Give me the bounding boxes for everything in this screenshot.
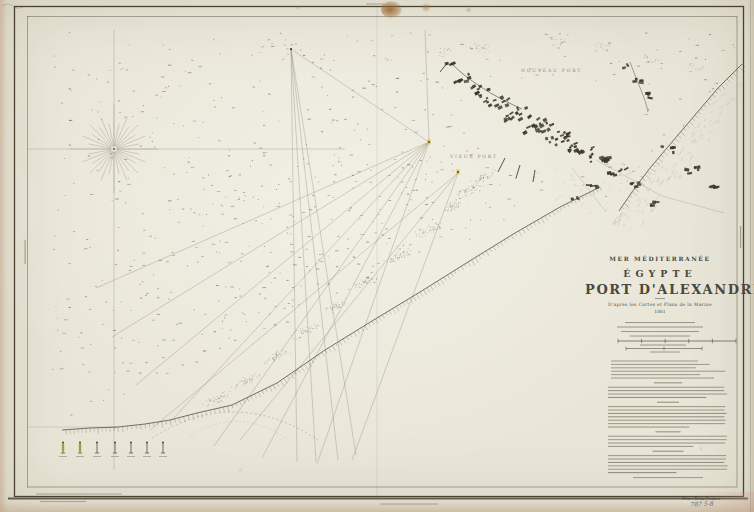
chart-sheet: MER MÉDITERRANÉE ÉGYPTE PORT D'ALEXANDRI…	[0, 0, 754, 512]
label-vieux-port: VIEUX PORT	[450, 154, 498, 159]
paper-edge	[0, 502, 754, 512]
coastline	[62, 62, 745, 435]
title-country: ÉGYPTE	[595, 268, 725, 279]
terrain-hatching	[555, 83, 742, 226]
title-year: 1861	[595, 309, 725, 314]
paper-edge	[748, 0, 754, 512]
bearing-lines	[96, 30, 458, 464]
beacon-row	[59, 442, 167, 457]
title-source-line: D'après les Cartes et Plans de la Marine	[595, 302, 725, 307]
title-port: PORT D'ALEXANDRIE	[585, 282, 735, 297]
label-nouveau-port: NOUVEAU PORT	[521, 68, 582, 73]
compass-rose	[70, 105, 158, 193]
reef-stipple	[202, 37, 704, 406]
catalog-number: 787 5-8	[690, 500, 713, 508]
title-sea-region: MER MÉDITERRANÉE	[595, 255, 725, 262]
city-blocks	[440, 61, 724, 213]
soundings	[52, 32, 734, 416]
paper-edge	[0, 0, 7, 512]
